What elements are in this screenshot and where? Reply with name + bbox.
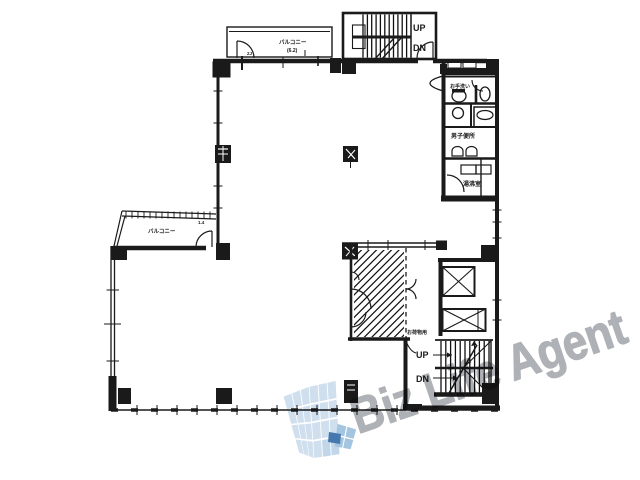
svg-text:UP: UP [416,350,429,360]
svg-text:バルコニー: バルコニー [148,228,176,235]
svg-text:男子便所: 男子便所 [451,132,475,140]
svg-text:1.4: 1.4 [198,220,205,225]
svg-text:バルコニー: バルコニー [279,39,307,46]
svg-text:UP: UP [413,23,426,33]
svg-text:2J: 2J [247,51,253,56]
svg-text:湯沸室: 湯沸室 [463,180,481,188]
svg-text:お手洗い: お手洗い [450,83,470,90]
svg-text:(6.2): (6.2) [287,48,298,54]
svg-text:お荷物用: お荷物用 [407,329,427,336]
